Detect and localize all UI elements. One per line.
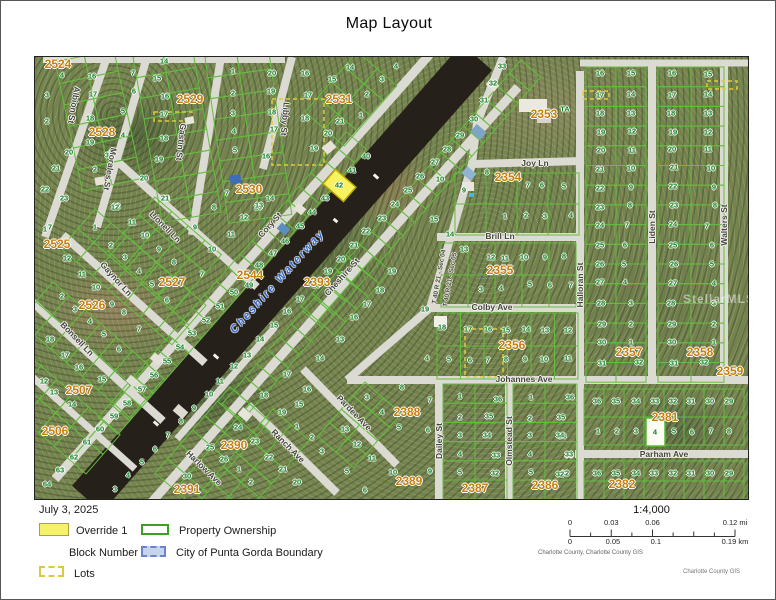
scale-tick-label: 0 <box>568 518 572 527</box>
legend-boundary-label: City of Punta Gorda Boundary <box>176 547 323 559</box>
city-boundary-swatch <box>141 546 166 557</box>
property-ownership-swatch <box>141 524 169 535</box>
scale-tick-label: 0.19 km <box>722 537 749 546</box>
map-canvas[interactable]: 4163172181920212223231211415161718192021… <box>34 56 749 500</box>
scale-ratio: 1:4,000 <box>569 504 734 516</box>
page-title: Map Layout <box>1 15 776 33</box>
scale-km-labels: 00.050.10.19 km <box>569 537 734 546</box>
scale-tick-label: 0.1 <box>651 537 661 546</box>
scale-tick-label: 0.06 <box>645 518 660 527</box>
scale-miles-labels: 00.030.060.12 mi <box>569 518 734 527</box>
scale-tick-label: 0 <box>568 537 572 546</box>
scale-tick-label: 0.03 <box>604 518 619 527</box>
map-attribution: Charlotte County, Charlotte County GIS <box>538 550 643 556</box>
legend-lots-label: Lots <box>74 568 95 580</box>
legend-block-number-label: Block Number <box>69 547 138 559</box>
scale-tick-label: 0.05 <box>606 537 621 546</box>
legend-date: July 3, 2025 <box>39 504 98 516</box>
legend-ownership-label: Property Ownership <box>179 525 276 537</box>
gis-credit: Charlotte County GIS <box>683 569 740 575</box>
override-swatch <box>39 523 69 536</box>
legend-override-label: Override 1 <box>76 525 127 537</box>
legend: July 3, 2025 Override 1 Property Ownersh… <box>39 504 399 594</box>
map-layout-page: { "title": "Map Layout", "legend": { "da… <box>0 0 776 600</box>
scale-tick-label: 0.12 mi <box>723 518 748 527</box>
lots-swatch <box>39 566 64 577</box>
map-graphics <box>35 57 748 499</box>
